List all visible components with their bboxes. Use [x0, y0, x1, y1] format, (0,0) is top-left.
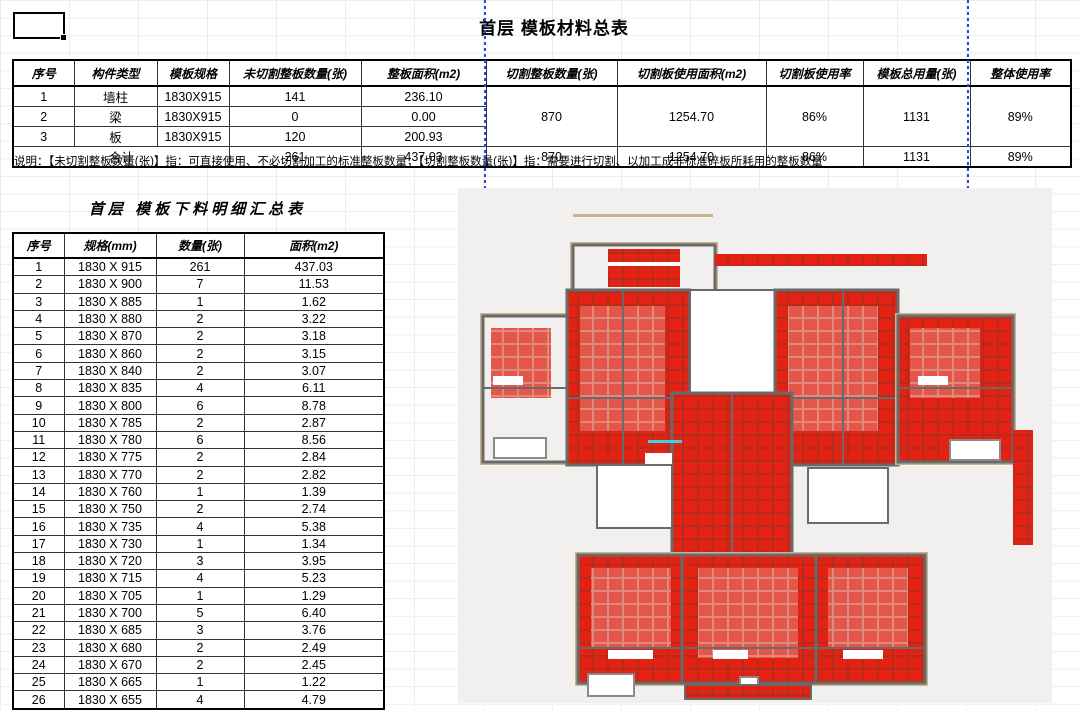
plan-panel: [788, 306, 878, 431]
table-cell[interactable]: 24: [13, 656, 64, 673]
table-cell[interactable]: 2: [156, 466, 244, 483]
table-row: 1 墙柱 1830X915 141 236.10 870 1254.70 86%…: [13, 86, 1071, 107]
table-cell[interactable]: 1830 X 680: [64, 639, 156, 656]
table-row: 251830 X 66511.22: [13, 674, 384, 691]
table-cell[interactable]: 10: [13, 414, 64, 431]
plan-panel: [698, 568, 798, 658]
table-cell[interactable]: 0.00: [361, 107, 486, 127]
floor-plan-image: [458, 188, 1052, 703]
plan-cyan-marker: [648, 440, 682, 443]
table-cell[interactable]: 1830 X 770: [64, 466, 156, 483]
table-cell[interactable]: 4.79: [244, 691, 384, 709]
table-cell[interactable]: 3: [13, 127, 74, 147]
plan-courtyard: [690, 290, 775, 393]
table-cell[interactable]: 1830 X 670: [64, 656, 156, 673]
table-cell[interactable]: 2: [156, 362, 244, 379]
table-cell[interactable]: 2: [156, 656, 244, 673]
merged-cell-cut-count[interactable]: 870: [486, 86, 617, 147]
table-cell[interactable]: 2: [156, 639, 244, 656]
table-row: 71830 X 84023.07: [13, 362, 384, 379]
table-cell[interactable]: 4: [156, 570, 244, 587]
merged-cell-overall-rate[interactable]: 89%: [970, 86, 1071, 147]
table-cell[interactable]: 21: [13, 604, 64, 621]
table-cell[interactable]: 3.18: [244, 328, 384, 345]
table-cell[interactable]: 1: [13, 86, 74, 107]
table-cell[interactable]: 4: [156, 691, 244, 709]
header-cell[interactable]: 切割板使用率: [766, 60, 863, 86]
table-cell[interactable]: 2.45: [244, 656, 384, 673]
table-row: 21830 X 900711.53: [13, 276, 384, 293]
header-cell[interactable]: 序号: [13, 60, 74, 86]
table-cell[interactable]: 1830 X 720: [64, 553, 156, 570]
table-cell[interactable]: 1.34: [244, 535, 384, 552]
table-cell[interactable]: 5.23: [244, 570, 384, 587]
table-cell[interactable]: 2.82: [244, 466, 384, 483]
table-cell[interactable]: 2: [156, 501, 244, 518]
page-break-line: [967, 0, 969, 188]
table-cell[interactable]: 3.95: [244, 553, 384, 570]
table-row: 131830 X 77022.82: [13, 466, 384, 483]
table-cell[interactable]: 11.53: [244, 276, 384, 293]
table-row: 141830 X 76011.39: [13, 483, 384, 500]
table-row: 201830 X 70511.29: [13, 587, 384, 604]
table-row: 231830 X 68022.49: [13, 639, 384, 656]
header-cell[interactable]: 面积(m2): [244, 233, 384, 258]
table-cell[interactable]: 1: [156, 293, 244, 310]
header-cell[interactable]: 模板规格: [157, 60, 229, 86]
table-cell[interactable]: 墙柱: [74, 86, 157, 107]
table-cell[interactable]: 1.62: [244, 293, 384, 310]
detail-header-row: 序号 规格(mm) 数量(张) 面积(m2): [13, 233, 384, 258]
table-row: 211830 X 70056.40: [13, 604, 384, 621]
plan-balcony: [494, 438, 546, 458]
table-cell[interactable]: 5: [156, 604, 244, 621]
table-cell[interactable]: 2: [156, 449, 244, 466]
table-row: 81830 X 83546.11: [13, 380, 384, 397]
plan-bottom-protrusion: [685, 685, 811, 699]
table-cell[interactable]: 1830 X 870: [64, 328, 156, 345]
table-cell[interactable]: 1830 X 760: [64, 483, 156, 500]
plan-panel: [608, 249, 680, 287]
table-cell[interactable]: 3: [156, 553, 244, 570]
table-cell[interactable]: 1830 X 835: [64, 380, 156, 397]
table-cell[interactable]: 1: [13, 258, 64, 276]
merged-cell-total-count[interactable]: 1131: [863, 86, 970, 147]
plan-room: [597, 465, 672, 528]
table-cell[interactable]: 1830 X 880: [64, 310, 156, 327]
table-cell[interactable]: 15: [13, 501, 64, 518]
table-cell[interactable]: 261: [156, 258, 244, 276]
header-cell[interactable]: 整板面积(m2): [361, 60, 486, 86]
detail-table-title: 首层 模板下料明细汇总表: [12, 198, 383, 219]
table-cell[interactable]: 1: [156, 674, 244, 691]
header-cell[interactable]: 整体使用率: [970, 60, 1071, 86]
table-row: 221830 X 68533.76: [13, 622, 384, 639]
table-cell[interactable]: 2: [156, 414, 244, 431]
table-cell[interactable]: 236.10: [361, 86, 486, 107]
table-cell[interactable]: 1830 X 780: [64, 431, 156, 448]
table-cell[interactable]: 16: [13, 518, 64, 535]
table-cell[interactable]: 3: [156, 622, 244, 639]
plan-balcony: [588, 674, 634, 696]
table-cell[interactable]: 3.22: [244, 310, 384, 327]
table-cell[interactable]: 6: [156, 431, 244, 448]
plan-gap: [608, 650, 653, 659]
plan-panel: [1013, 430, 1033, 545]
table-cell[interactable]: 1: [156, 587, 244, 604]
table-cell[interactable]: 2: [156, 328, 244, 345]
table-cell[interactable]: 1: [156, 483, 244, 500]
table-cell[interactable]: 5: [13, 328, 64, 345]
table-row: 91830 X 80068.78: [13, 397, 384, 414]
table-row: 111830 X 78068.56: [13, 431, 384, 448]
table-row: 161830 X 73545.38: [13, 518, 384, 535]
table-note: 说明：【未切割整板数量(张)】指：可直接使用、不必切割加工的标准整板数量；【切割…: [14, 153, 1074, 169]
table-cell[interactable]: 23: [13, 639, 64, 656]
table-cell[interactable]: 1830 X 800: [64, 397, 156, 414]
table-cell[interactable]: 梁: [74, 107, 157, 127]
table-cell[interactable]: 1830 X 705: [64, 587, 156, 604]
table-cell[interactable]: 3.15: [244, 345, 384, 362]
table-cell[interactable]: 19: [13, 570, 64, 587]
table-row: 151830 X 75022.74: [13, 501, 384, 518]
table-row: 41830 X 88023.22: [13, 310, 384, 327]
header-cell[interactable]: 构件类型: [74, 60, 157, 86]
table-cell[interactable]: 1830 X 915: [64, 258, 156, 276]
page-break-line: [484, 0, 486, 188]
table-cell[interactable]: 1830 X 885: [64, 293, 156, 310]
header-cell[interactable]: 数量(张): [156, 233, 244, 258]
table-cell[interactable]: 4: [156, 380, 244, 397]
table-cell[interactable]: 1830 X 860: [64, 345, 156, 362]
merged-cell-cut-area[interactable]: 1254.70: [617, 86, 766, 147]
header-cell[interactable]: 模板总用量(张): [863, 60, 970, 86]
table-cell[interactable]: 3.07: [244, 362, 384, 379]
plan-panel: [828, 568, 908, 648]
table-cell[interactable]: 120: [229, 127, 361, 147]
table-cell[interactable]: 5.38: [244, 518, 384, 535]
table-cell[interactable]: 2.84: [244, 449, 384, 466]
table-row: 191830 X 71545.23: [13, 570, 384, 587]
plan-gap: [843, 650, 883, 659]
detail-table: 序号 规格(mm) 数量(张) 面积(m2) 11830 X 915261437…: [12, 232, 385, 710]
table-cell[interactable]: 7: [13, 362, 64, 379]
table-cell[interactable]: 1.39: [244, 483, 384, 500]
table-row: 181830 X 72033.95: [13, 553, 384, 570]
header-cell[interactable]: 切割整板数量(张): [486, 60, 617, 86]
table-cell[interactable]: 1830 X 785: [64, 414, 156, 431]
table-row: 101830 X 78522.87: [13, 414, 384, 431]
table-cell[interactable]: 6: [156, 397, 244, 414]
table-cell[interactable]: 2: [156, 310, 244, 327]
table-cell[interactable]: 2.49: [244, 639, 384, 656]
table-cell[interactable]: 1830 X 750: [64, 501, 156, 518]
table-cell[interactable]: 8.78: [244, 397, 384, 414]
table-cell[interactable]: 1830 X 730: [64, 535, 156, 552]
table-row: 261830 X 65544.79: [13, 691, 384, 709]
table-cell[interactable]: 437.03: [244, 258, 384, 276]
floor-plan-svg: [458, 188, 1052, 703]
table-cell[interactable]: 4: [13, 310, 64, 327]
table-cell[interactable]: 1830 X 900: [64, 276, 156, 293]
table-cell[interactable]: 14: [13, 483, 64, 500]
header-cell[interactable]: 规格(mm): [64, 233, 156, 258]
table-cell[interactable]: 2: [13, 107, 74, 127]
table-cell[interactable]: 1.22: [244, 674, 384, 691]
table-cell[interactable]: 6: [13, 345, 64, 362]
fill-handle[interactable]: [60, 34, 67, 41]
table-cell[interactable]: 1830 X 700: [64, 604, 156, 621]
table-cell[interactable]: 141: [229, 86, 361, 107]
summary-table-title: 首层 模板材料总表: [449, 14, 659, 39]
table-cell[interactable]: 0: [229, 107, 361, 127]
table-row: 11830 X 915261437.03: [13, 258, 384, 276]
table-row: 51830 X 87023.18: [13, 328, 384, 345]
table-cell[interactable]: 板: [74, 127, 157, 147]
plan-gap: [918, 376, 948, 385]
table-cell[interactable]: 3: [13, 293, 64, 310]
table-row: 31830 X 88511.62: [13, 293, 384, 310]
plan-gap: [608, 262, 680, 266]
plan-dimension-line: [573, 214, 713, 217]
table-cell[interactable]: 11: [13, 431, 64, 448]
table-cell[interactable]: 22: [13, 622, 64, 639]
table-cell[interactable]: 25: [13, 674, 64, 691]
plan-room: [808, 468, 888, 523]
table-cell[interactable]: 4: [156, 518, 244, 535]
table-cell[interactable]: 1830 X 665: [64, 674, 156, 691]
plan-panel: [591, 568, 671, 648]
header-cell[interactable]: 序号: [13, 233, 64, 258]
table-cell[interactable]: 1830X915: [157, 107, 229, 127]
table-cell[interactable]: 6.11: [244, 380, 384, 397]
header-cell[interactable]: 切割板使用面积(m2): [617, 60, 766, 86]
plan-balcony: [950, 440, 1000, 460]
table-row: 171830 X 73011.34: [13, 535, 384, 552]
table-cell[interactable]: 1830X915: [157, 86, 229, 107]
table-cell[interactable]: 200.93: [361, 127, 486, 147]
table-cell[interactable]: 13: [13, 466, 64, 483]
summary-header-row: 序号 构件类型 模板规格 未切割整板数量(张) 整板面积(m2) 切割整板数量(…: [13, 60, 1071, 86]
table-cell[interactable]: 3.76: [244, 622, 384, 639]
table-cell[interactable]: 1830 X 735: [64, 518, 156, 535]
table-cell[interactable]: 1830 X 840: [64, 362, 156, 379]
table-cell[interactable]: 12: [13, 449, 64, 466]
plan-gap: [713, 650, 748, 659]
table-cell[interactable]: 1.29: [244, 587, 384, 604]
table-cell[interactable]: 2: [156, 345, 244, 362]
table-cell[interactable]: 1: [156, 535, 244, 552]
table-cell[interactable]: 2: [13, 276, 64, 293]
merged-cell-cut-rate[interactable]: 86%: [766, 86, 863, 147]
table-cell[interactable]: 1830 X 655: [64, 691, 156, 709]
plan-panel: [715, 254, 927, 266]
table-cell[interactable]: 9: [13, 397, 64, 414]
header-cell[interactable]: 未切割整板数量(张): [229, 60, 361, 86]
selected-cell[interactable]: [13, 12, 65, 39]
table-cell[interactable]: 8: [13, 380, 64, 397]
table-cell[interactable]: 1830 X 775: [64, 449, 156, 466]
table-cell[interactable]: 1830 X 715: [64, 570, 156, 587]
table-cell[interactable]: 26: [13, 691, 64, 709]
table-cell[interactable]: 1830 X 685: [64, 622, 156, 639]
table-row: 61830 X 86023.15: [13, 345, 384, 362]
table-cell[interactable]: 7: [156, 276, 244, 293]
table-cell[interactable]: 18: [13, 553, 64, 570]
table-row: 121830 X 77522.84: [13, 449, 384, 466]
summary-table: 序号 构件类型 模板规格 未切割整板数量(张) 整板面积(m2) 切割整板数量(…: [12, 59, 1072, 168]
table-cell[interactable]: 1830X915: [157, 127, 229, 147]
plan-gap: [493, 376, 523, 385]
table-row: 241830 X 67022.45: [13, 656, 384, 673]
table-cell[interactable]: 2.74: [244, 501, 384, 518]
table-cell[interactable]: 6.40: [244, 604, 384, 621]
table-cell[interactable]: 8.56: [244, 431, 384, 448]
table-cell[interactable]: 17: [13, 535, 64, 552]
table-cell[interactable]: 2.87: [244, 414, 384, 431]
spreadsheet-page: { "summary": { "title": "首层 模板材料总表", "he…: [0, 0, 1080, 703]
table-cell[interactable]: 20: [13, 587, 64, 604]
